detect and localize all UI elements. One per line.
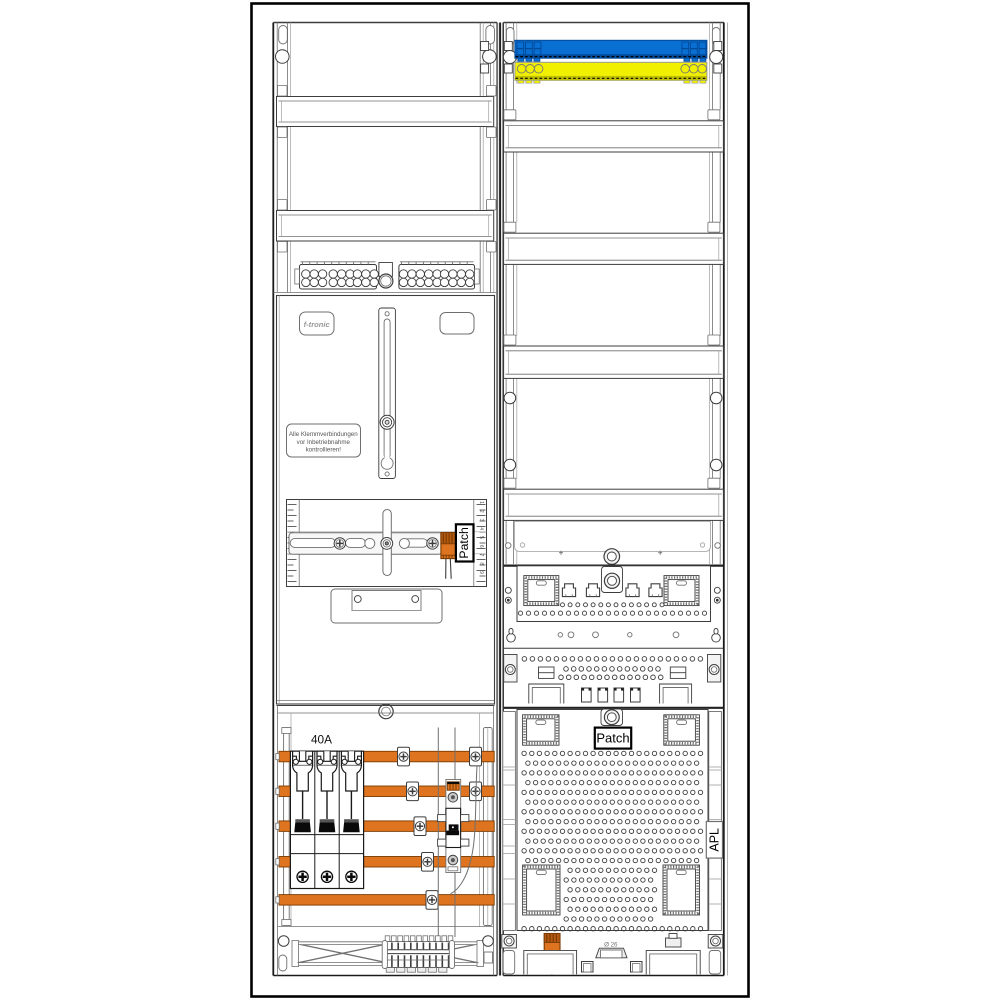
svg-text:6: 6	[478, 545, 484, 548]
svg-text:1: 1	[478, 501, 484, 504]
svg-text:kontrollieren!: kontrollieren!	[306, 446, 342, 453]
svg-text:9: 9	[478, 571, 484, 574]
svg-text:APL: APL	[707, 828, 721, 852]
svg-text:Patch: Patch	[596, 730, 629, 745]
svg-text:vor Inbetriebnahme: vor Inbetriebnahme	[297, 439, 351, 446]
svg-text:5: 5	[478, 536, 484, 539]
svg-text:f-tronic: f-tronic	[304, 320, 331, 329]
svg-text:2: 2	[478, 510, 484, 513]
svg-text:4: 4	[478, 527, 484, 530]
svg-text:40A: 40A	[311, 733, 332, 747]
svg-text:Alle Klemmverbindungen: Alle Klemmverbindungen	[289, 431, 358, 438]
svg-text:Ø 26: Ø 26	[604, 942, 618, 949]
svg-text:8: 8	[478, 562, 484, 565]
svg-text:Patch: Patch	[457, 527, 471, 559]
svg-text:3: 3	[478, 519, 484, 522]
